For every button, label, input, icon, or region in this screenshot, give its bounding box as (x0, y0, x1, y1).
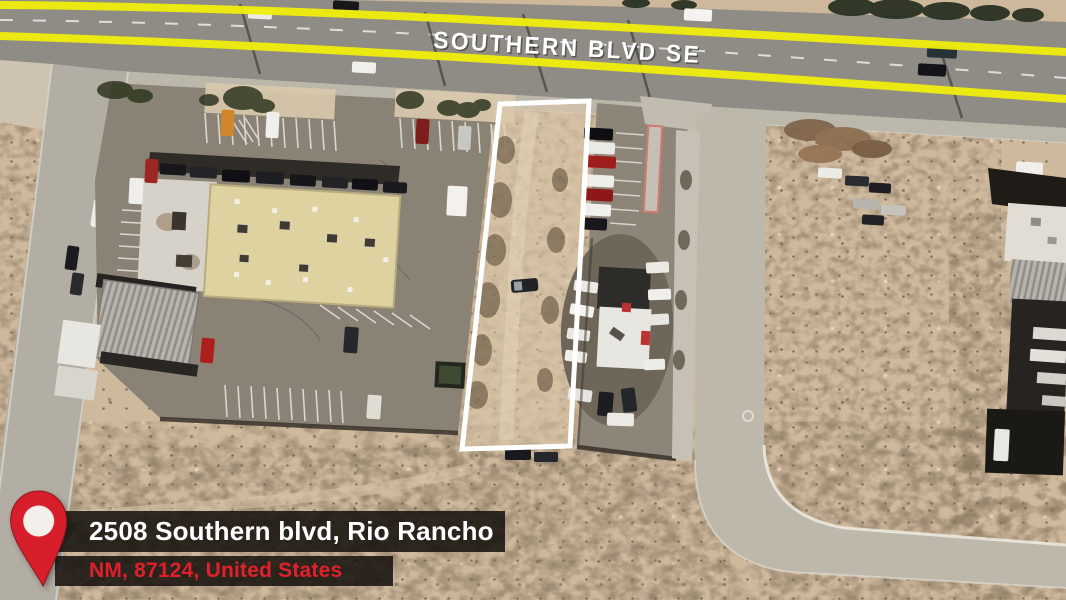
car (505, 449, 531, 460)
parked-suv-in-parcel (511, 278, 539, 293)
warehouse-building (93, 273, 199, 377)
car (534, 452, 558, 462)
satellite-scene: SOUTHERN BLVD SE SOUTHERN BLVD SE (0, 0, 1066, 600)
shade-canopy (434, 361, 465, 389)
retail-building-main (204, 184, 400, 307)
retail-lot (54, 81, 516, 433)
drive-thru-building (596, 267, 651, 370)
aerial-map: SOUTHERN BLVD SE SOUTHERN BLVD SE (0, 0, 1066, 600)
